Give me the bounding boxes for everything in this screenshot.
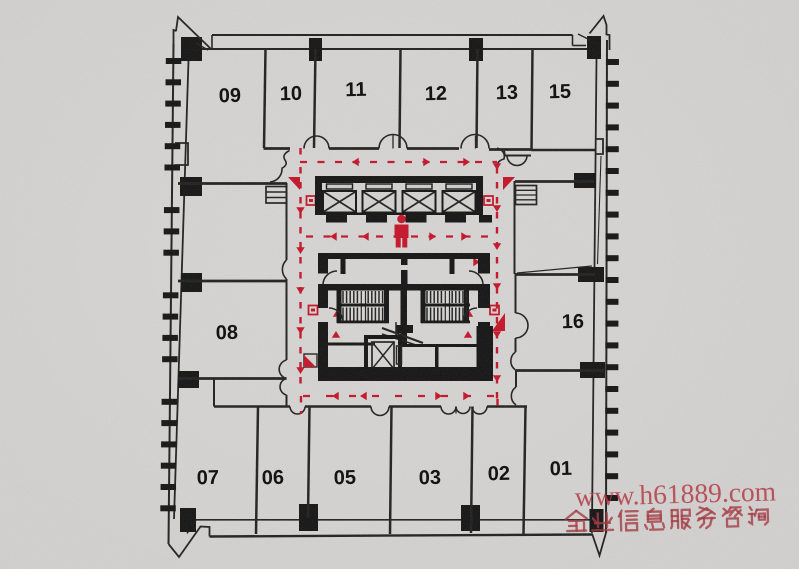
svg-text:www.h61889.com: www.h61889.com bbox=[574, 475, 776, 512]
